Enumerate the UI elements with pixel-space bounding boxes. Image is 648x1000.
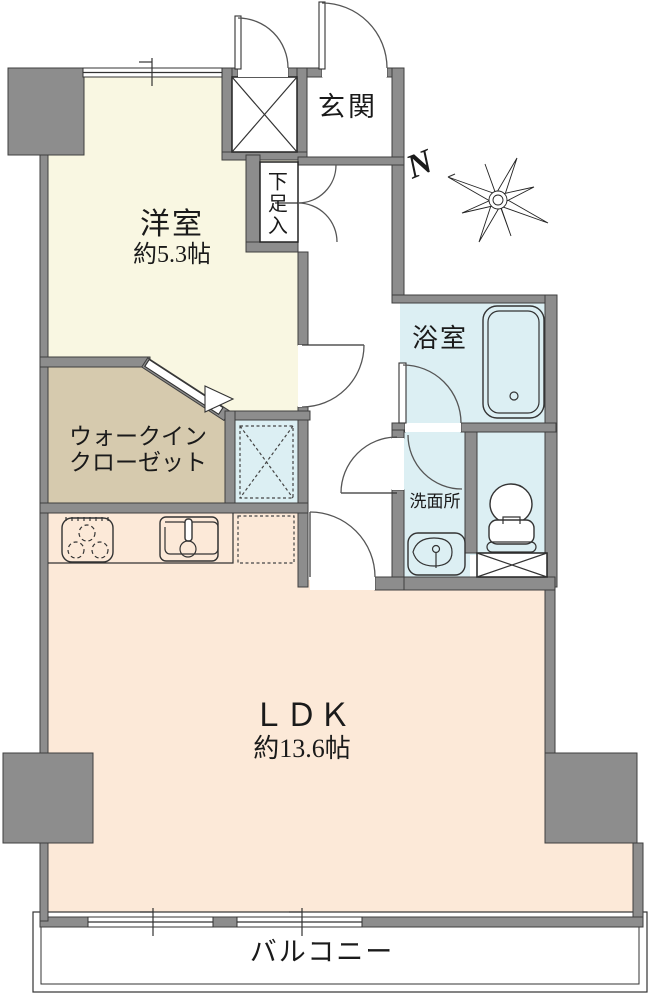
room-area: 約13.6帖 bbox=[182, 734, 422, 763]
pillar bbox=[3, 753, 93, 843]
entrance-door bbox=[319, 2, 387, 77]
ldk-door bbox=[310, 512, 375, 590]
room-name: 洋室 bbox=[52, 208, 292, 242]
closet-name-line2: クローゼット bbox=[40, 450, 236, 476]
entrance-step bbox=[298, 157, 404, 165]
closet-name-line1: ウォークイン bbox=[40, 424, 236, 450]
room-label-ldk: ＬＤＫ 約13.6帖 bbox=[182, 698, 422, 763]
room-name: ＬＤＫ bbox=[182, 698, 422, 734]
room-label-western-room: 洋室 約5.3帖 bbox=[52, 208, 292, 268]
room-label-washroom: 洗面所 bbox=[400, 492, 470, 511]
floor-plan: 玄関 下足入 洋室 約5.3帖 ウォークイン クローゼット 浴室 洗面所 ＬＤＫ… bbox=[0, 0, 648, 1000]
room-label-entrance: 玄関 bbox=[305, 92, 391, 122]
floor-plan-drawing bbox=[0, 0, 648, 1000]
room-area: 約5.3帖 bbox=[52, 242, 292, 269]
compass-icon bbox=[448, 158, 548, 242]
pillar bbox=[8, 68, 84, 155]
pillar bbox=[545, 753, 637, 843]
room-label-balcony: バルコニー bbox=[162, 937, 482, 967]
room-label-walk-in-closet: ウォークイン クローゼット bbox=[40, 424, 236, 476]
room-label-bathroom: 浴室 bbox=[400, 324, 480, 353]
meter-box-door bbox=[235, 16, 288, 77]
western-room-door bbox=[298, 345, 364, 407]
pipe-space-box bbox=[232, 77, 297, 152]
room-fill-bathroom bbox=[400, 300, 550, 426]
laundry-pan-box bbox=[477, 553, 547, 577]
room-fill-ldk bbox=[540, 843, 640, 920]
